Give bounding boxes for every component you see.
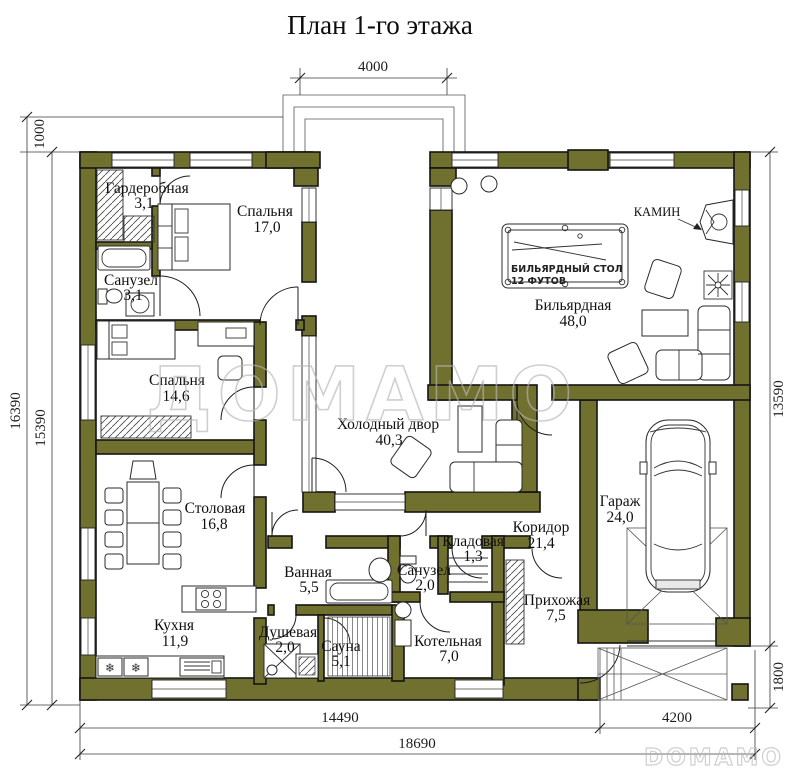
room-label-koridor: Коридор (513, 519, 570, 536)
fireplace-label: КАМИН (634, 205, 681, 219)
bed (158, 204, 230, 270)
stool (451, 178, 467, 194)
room-area-kotelnaya: 7,0 (439, 648, 459, 665)
room-area-sanuzel-2: 2,0 (415, 577, 435, 594)
sink (369, 558, 391, 582)
room-label-spalnya-1: Спальня (237, 203, 293, 220)
dim-top: 4000 (358, 59, 388, 75)
dim-bottom-right: 4200 (662, 710, 692, 726)
room-area-sauna: 5,1 (331, 653, 350, 670)
armchair (606, 341, 649, 385)
room-area-spalnya-1: 17,0 (253, 219, 280, 236)
room-area-garderobnaya: 3,1 (134, 195, 153, 212)
room-area-vannaya: 5,5 (299, 579, 319, 596)
page-title: План 1-го этажа (287, 10, 473, 40)
room-area-kuhnya: 11,9 (162, 633, 189, 650)
dim-right-main: 13590 (771, 380, 787, 418)
desk (198, 322, 254, 346)
fireplace (700, 200, 733, 244)
plant (704, 271, 732, 299)
room-area-garazh: 24,0 (606, 509, 633, 526)
dim-left-top: 1000 (32, 119, 48, 149)
room-label-stolovaya: Столовая (185, 500, 246, 517)
watermark-corner: DOMAMO (644, 745, 784, 771)
boiler (395, 602, 411, 646)
dining-table (105, 461, 181, 569)
stool (481, 176, 497, 192)
room-area-sanuzel-1: 3,1 (123, 287, 142, 304)
fridge-icon: ❄ (105, 661, 115, 675)
room-label-bilyardnaya: Бильярдная (535, 297, 612, 314)
room-area-kladovaya: 1,3 (463, 548, 483, 565)
room-area-dushevaya: 2,0 (275, 639, 295, 656)
room-area-stolovaya: 16,8 (200, 516, 227, 533)
room-label-kuhnya: Кухня (154, 617, 194, 634)
driveway-apron (598, 648, 727, 700)
dim-right-lower: 1800 (771, 662, 787, 692)
freezer-icon: ❄ (131, 661, 141, 675)
room-area-koridor: 21,4 (527, 535, 554, 552)
billiard-table-label-1: БИЛЬЯРДНЫЙ СТОЛ (511, 263, 623, 275)
bathtub (98, 246, 150, 270)
dim-left-inner: 15390 (33, 409, 49, 447)
porch-outline (283, 95, 465, 152)
armchair (643, 258, 682, 300)
room-area-prihozhaya: 7,5 (546, 607, 566, 624)
room-label-garazh: Гараж (600, 493, 641, 510)
wardrobe-closet (124, 216, 154, 242)
room-area-bilyardnaya: 48,0 (559, 313, 586, 330)
hallway-closet (506, 560, 524, 644)
dim-bottom-left: 14490 (321, 710, 359, 726)
car (640, 420, 716, 592)
watermark-center: ДОМАМО (146, 352, 578, 438)
dim-bottom-total: 18690 (398, 736, 436, 752)
dim-left-outer: 16390 (8, 392, 24, 430)
coffee-table (642, 310, 688, 336)
billiard-table-label-2: 12 ФУТОВ (511, 276, 566, 287)
toilet (98, 289, 122, 304)
bathtub (326, 580, 392, 603)
floor-plan-canvas: План 1-го этажа (0, 0, 800, 778)
